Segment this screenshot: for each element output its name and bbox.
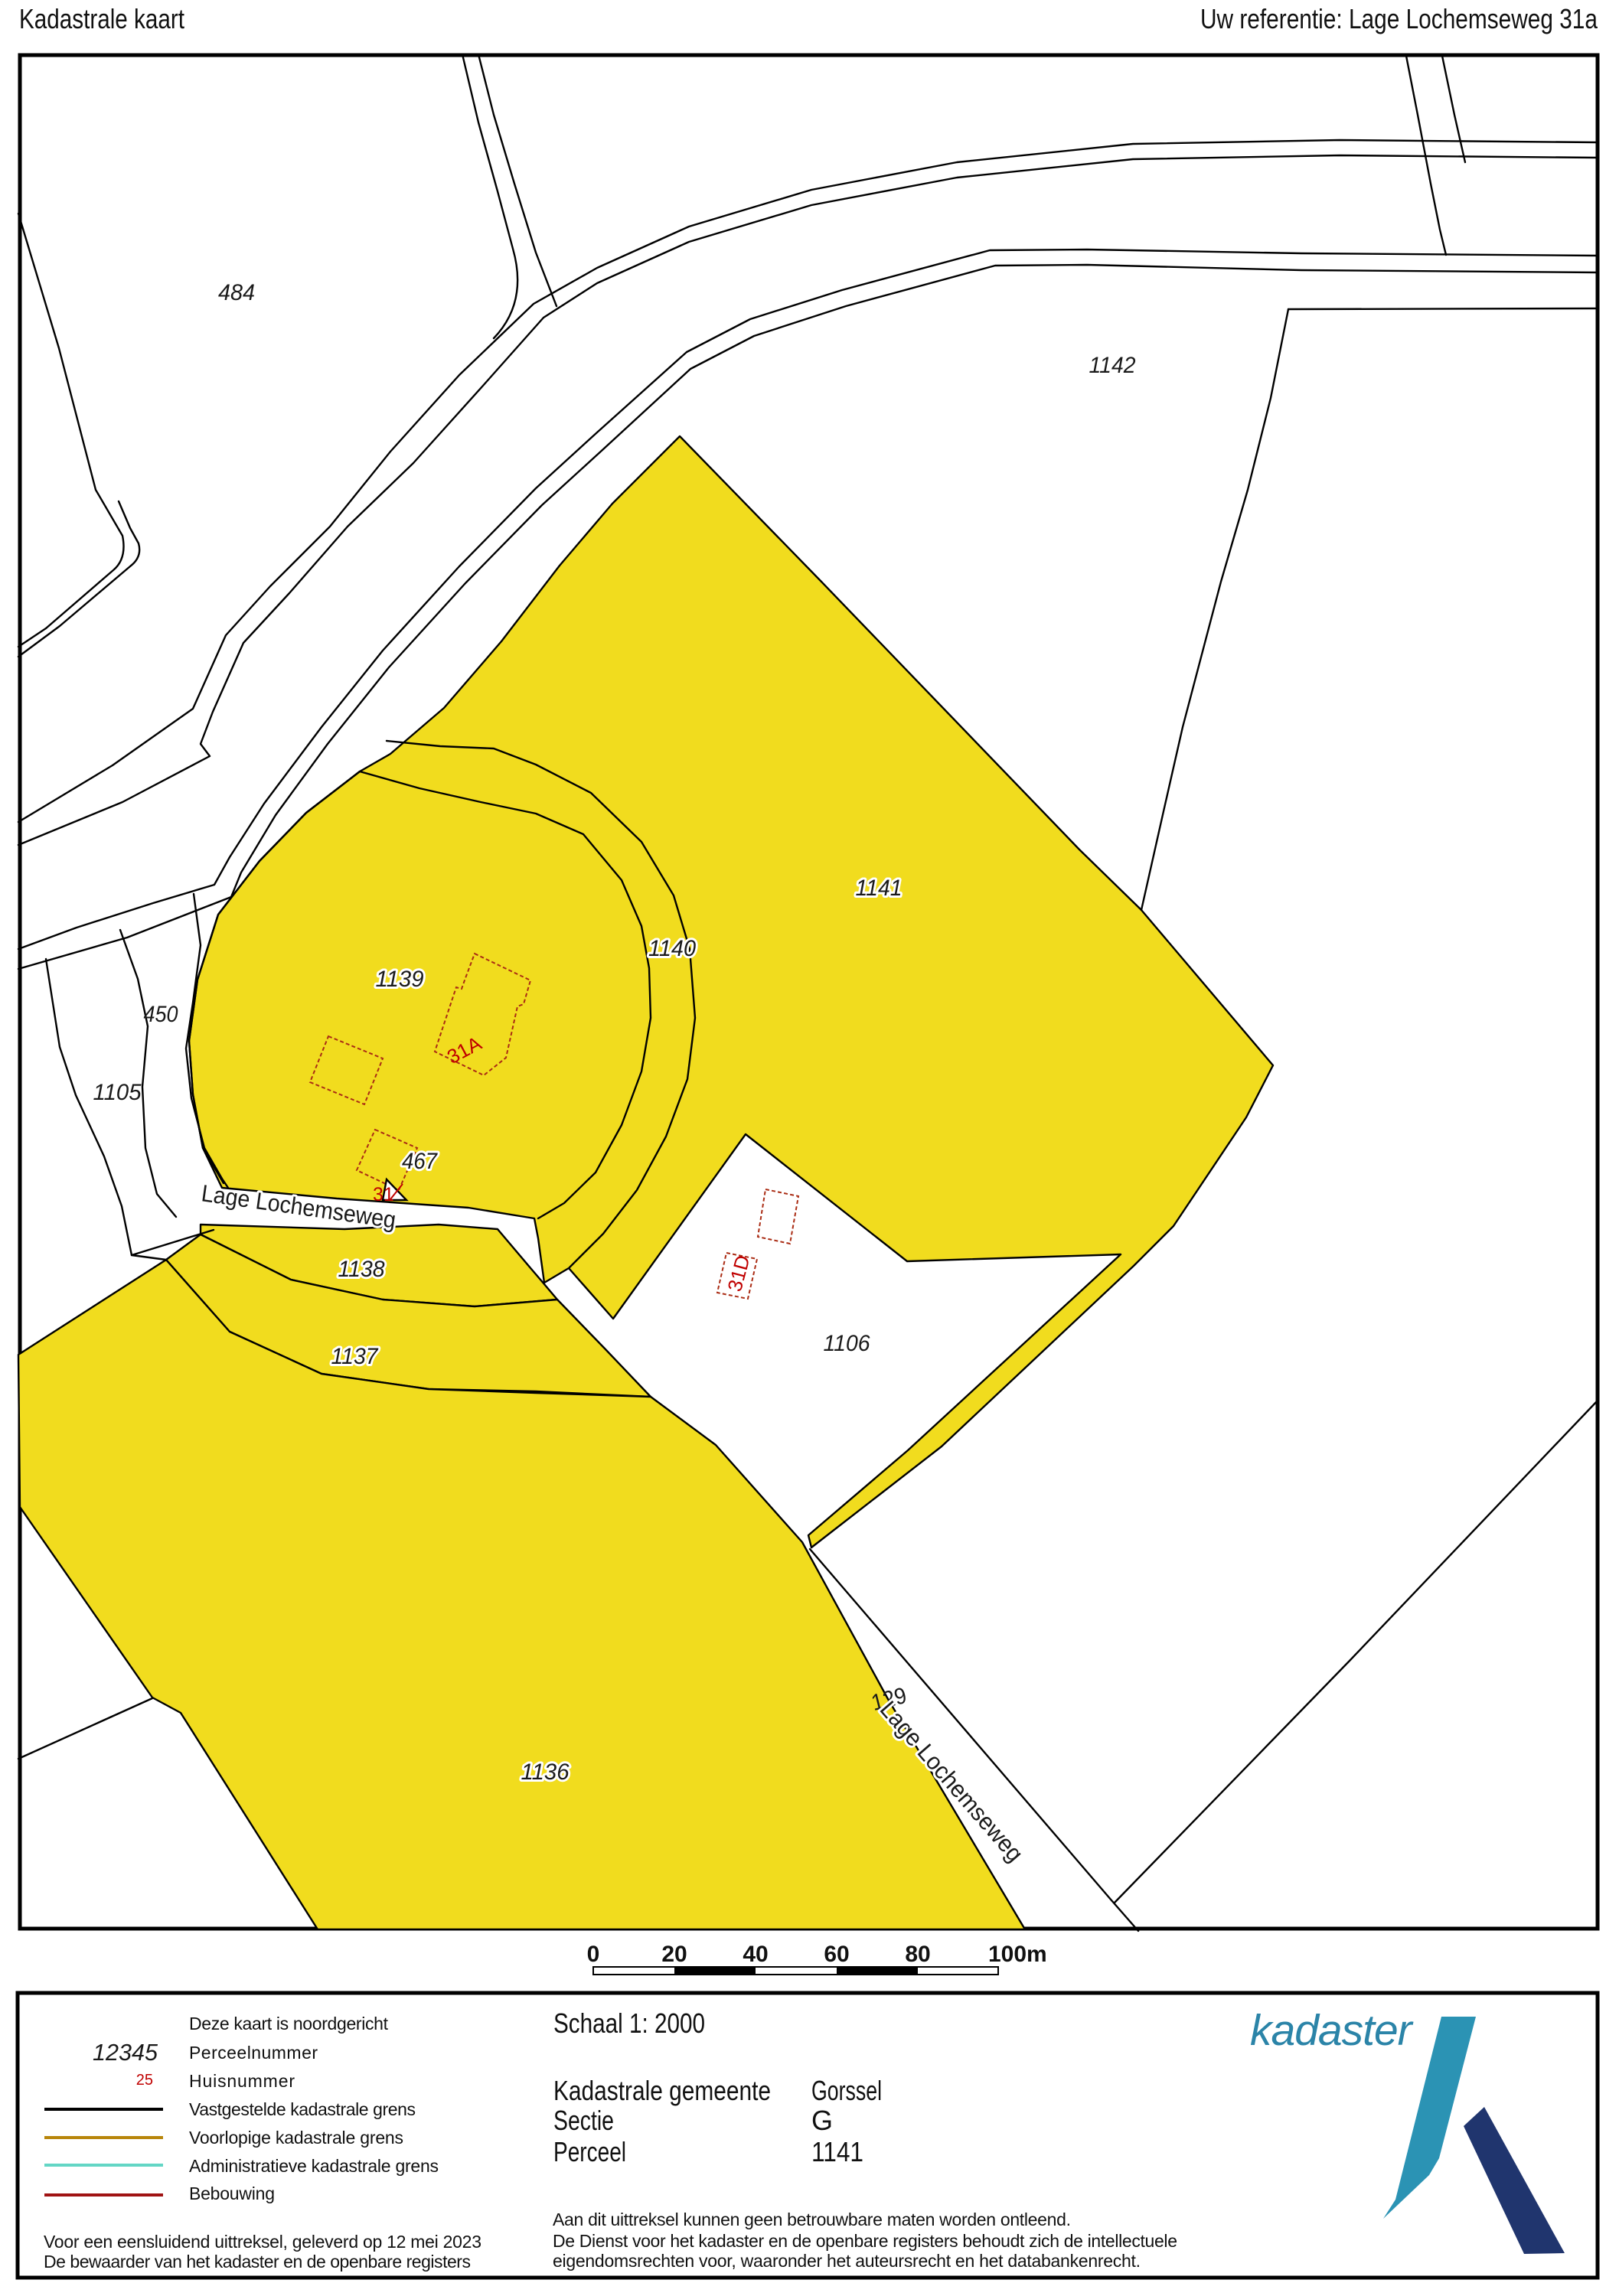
- svg-text:0: 0: [587, 1942, 600, 1967]
- svg-text:1141: 1141: [856, 876, 903, 901]
- svg-text:1137: 1137: [331, 1344, 379, 1369]
- svg-text:80: 80: [905, 1942, 930, 1967]
- svg-text:De bewaarder van het kadaster: De bewaarder van het kadaster en de open…: [44, 2252, 471, 2272]
- svg-text:484: 484: [218, 280, 255, 305]
- svg-text:Perceel: Perceel: [553, 2136, 626, 2167]
- svg-text:1139: 1139: [376, 967, 424, 992]
- svg-text:40: 40: [743, 1942, 768, 1967]
- svg-text:60: 60: [824, 1942, 849, 1967]
- svg-text:Gorssel: Gorssel: [811, 2075, 882, 2106]
- svg-text:Schaal 1: 2000: Schaal 1: 2000: [553, 2007, 705, 2039]
- svg-text:12345: 12345: [93, 2039, 158, 2066]
- svg-text:Sectie: Sectie: [553, 2105, 614, 2136]
- svg-text:eigendomsrechten voor, waarond: eigendomsrechten voor, waaronder het aut…: [553, 2251, 1141, 2271]
- svg-text:De Dienst voor het kadaster en: De Dienst voor het kadaster en de openba…: [553, 2231, 1177, 2251]
- svg-text:Huisnummer: Huisnummer: [189, 2071, 295, 2091]
- svg-text:Kadastrale kaart: Kadastrale kaart: [19, 3, 184, 34]
- svg-text:Kadastrale gemeente: Kadastrale gemeente: [553, 2075, 771, 2106]
- svg-text:1136: 1136: [521, 1760, 570, 1785]
- svg-text:1140: 1140: [648, 936, 696, 961]
- svg-text:450: 450: [144, 1002, 178, 1027]
- svg-text:Aan dit uittreksel kunnen geen: Aan dit uittreksel kunnen geen betrouwba…: [553, 2210, 1071, 2229]
- svg-text:Administratieve kadastrale gre: Administratieve kadastrale grens: [189, 2156, 439, 2176]
- svg-text:Uw referentie: Lage Lochemsewe: Uw referentie: Lage Lochemseweg 31a: [1200, 3, 1598, 34]
- svg-text:31: 31: [373, 1184, 394, 1205]
- svg-text:1138: 1138: [338, 1257, 385, 1282]
- svg-text:467: 467: [402, 1149, 438, 1174]
- svg-text:Perceelnummer: Perceelnummer: [189, 2043, 318, 2063]
- svg-text:25: 25: [136, 2072, 153, 2089]
- svg-text:20: 20: [661, 1942, 687, 1967]
- svg-text:100m: 100m: [988, 1942, 1047, 1967]
- svg-text:1141: 1141: [811, 2136, 863, 2167]
- svg-text:G: G: [811, 2105, 833, 2136]
- svg-text:kadaster: kadaster: [1250, 2006, 1414, 2055]
- svg-text:Bebouwing: Bebouwing: [189, 2183, 275, 2203]
- svg-text:Deze kaart is noordgericht: Deze kaart is noordgericht: [189, 2014, 389, 2033]
- svg-text:1106: 1106: [824, 1331, 870, 1356]
- svg-text:Voor een eensluidend uittrekse: Voor een eensluidend uittreksel, gelever…: [44, 2232, 481, 2252]
- svg-text:Voorlopige kadastrale grens: Voorlopige kadastrale grens: [189, 2128, 403, 2148]
- svg-text:1142: 1142: [1089, 353, 1136, 378]
- svg-text:1105: 1105: [93, 1080, 142, 1105]
- svg-text:Vastgestelde kadastrale grens: Vastgestelde kadastrale grens: [189, 2099, 416, 2119]
